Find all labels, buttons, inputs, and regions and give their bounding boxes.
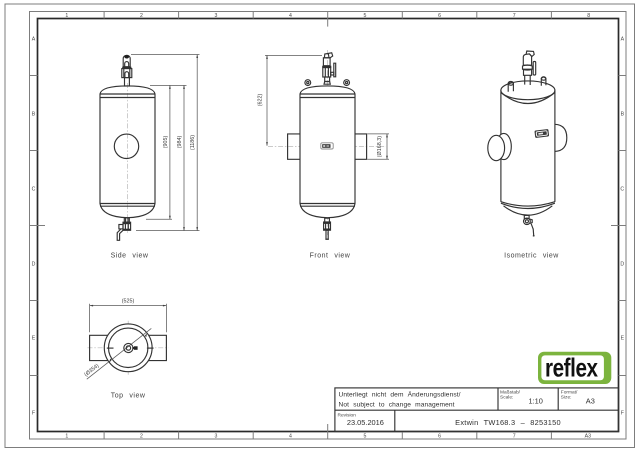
svg-text:5: 5 <box>364 13 367 19</box>
svg-text:Size:: Size: <box>561 394 572 400</box>
svg-text:2: 2 <box>140 433 143 439</box>
svg-text:(Ø168,3): (Ø168,3) <box>377 136 383 157</box>
svg-text:(905): (905) <box>163 136 169 149</box>
svg-text:D: D <box>620 262 624 268</box>
svg-text:D: D <box>32 262 36 268</box>
svg-text:Front view: Front view <box>310 252 351 259</box>
svg-text:3: 3 <box>214 13 217 19</box>
svg-text:23.05.2016: 23.05.2016 <box>347 418 384 427</box>
svg-text:Not subject to change manageme: Not subject to change management <box>339 401 455 408</box>
svg-text:1: 1 <box>65 433 68 439</box>
svg-text:A: A <box>621 37 625 43</box>
svg-text:1: 1 <box>65 13 68 19</box>
svg-text:A3: A3 <box>586 396 595 405</box>
svg-text:4: 4 <box>289 433 292 439</box>
svg-text:A3: A3 <box>585 433 591 439</box>
svg-text:F: F <box>32 411 35 417</box>
svg-text:(1186): (1186) <box>190 135 196 150</box>
svg-text:A: A <box>32 37 36 43</box>
svg-text:C: C <box>32 187 36 193</box>
svg-text:4: 4 <box>289 13 292 19</box>
svg-text:6: 6 <box>438 433 441 439</box>
svg-text:Extwin TW168.3 – 8253150: Extwin TW168.3 – 8253150 <box>455 418 561 427</box>
svg-text:6: 6 <box>438 13 441 19</box>
svg-text:reflex: reflex <box>545 354 598 383</box>
svg-text:E: E <box>621 336 625 342</box>
svg-text:(622): (622) <box>257 94 263 107</box>
svg-text:1:10: 1:10 <box>529 396 543 405</box>
svg-text:Unterliegt nicht dem Änderungs: Unterliegt nicht dem Änderungsdienst/ <box>339 390 461 398</box>
svg-text:7: 7 <box>513 13 516 19</box>
svg-text:2: 2 <box>140 13 143 19</box>
svg-text:Side view: Side view <box>111 252 149 259</box>
svg-text:(984): (984) <box>177 136 183 149</box>
svg-text:B: B <box>621 112 625 118</box>
svg-text:E: E <box>32 336 36 342</box>
svg-text:F: F <box>621 411 624 417</box>
svg-text:(525): (525) <box>122 299 135 305</box>
svg-text:Scale:: Scale: <box>500 394 513 400</box>
svg-text:3: 3 <box>214 433 217 439</box>
svg-text:8: 8 <box>587 13 590 19</box>
svg-text:C: C <box>620 187 624 193</box>
svg-text:7: 7 <box>513 433 516 439</box>
svg-text:B: B <box>32 112 36 118</box>
svg-text:5: 5 <box>364 433 367 439</box>
svg-text:Top view: Top view <box>111 393 146 400</box>
svg-text:Isometric view: Isometric view <box>504 252 559 259</box>
